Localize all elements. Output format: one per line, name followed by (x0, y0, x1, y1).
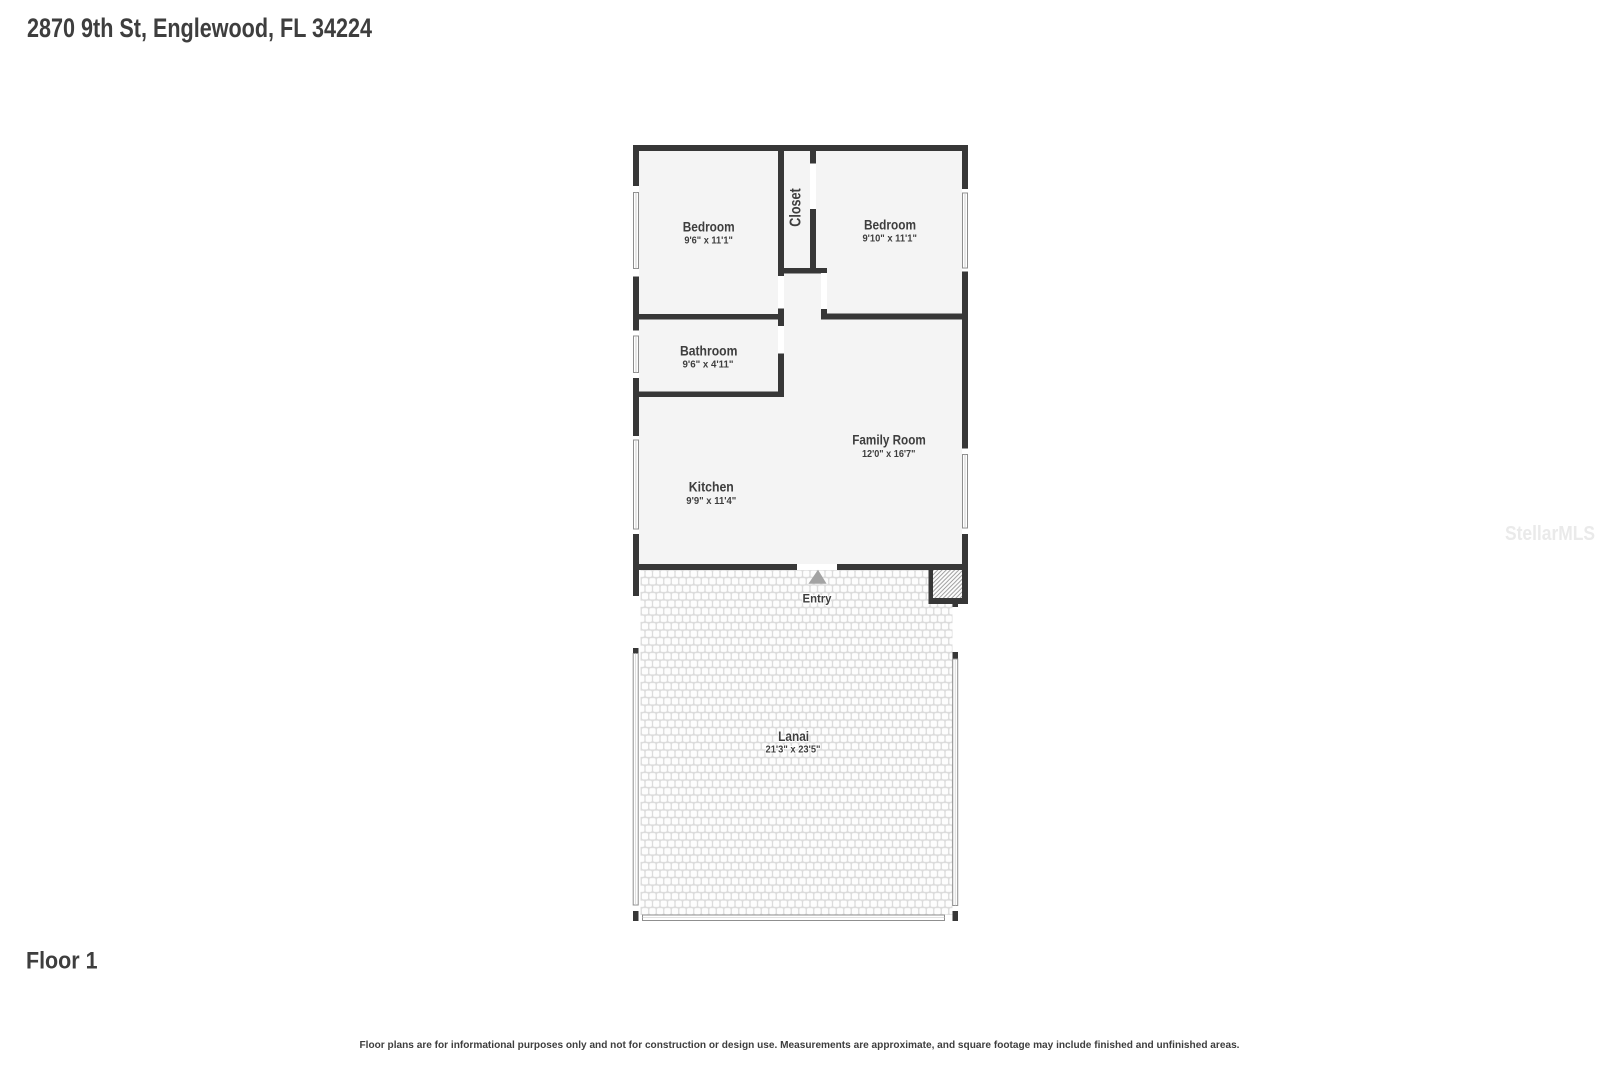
svg-text:21'3" x 23'5": 21'3" x 23'5" (766, 745, 821, 756)
svg-text:StellarMLS: StellarMLS (1505, 522, 1595, 545)
svg-text:Floor 1: Floor 1 (26, 948, 98, 975)
svg-text:Bathroom: Bathroom (680, 343, 738, 359)
svg-text:Bedroom: Bedroom (683, 219, 735, 235)
svg-text:12'0" x 16'7": 12'0" x 16'7" (862, 449, 916, 460)
svg-text:Kitchen: Kitchen (689, 478, 734, 494)
svg-text:Family Room: Family Room (852, 432, 926, 448)
svg-text:Closet: Closet (788, 188, 805, 227)
svg-text:9'9" x 11'4": 9'9" x 11'4" (686, 496, 736, 507)
svg-text:Floor plans are for informatio: Floor plans are for informational purpos… (360, 1039, 1240, 1051)
svg-text:Lanai: Lanai (778, 728, 809, 744)
svg-text:9'6" x 4'11": 9'6" x 4'11" (683, 360, 734, 371)
svg-text:9'6" x 11'1": 9'6" x 11'1" (684, 236, 733, 247)
svg-text:9'10" x 11'1": 9'10" x 11'1" (862, 234, 917, 245)
svg-text:2870 9th St, Englewood, FL 342: 2870 9th St, Englewood, FL 34224 (27, 13, 372, 43)
svg-text:Entry: Entry (803, 592, 832, 606)
svg-text:Bedroom: Bedroom (864, 217, 916, 233)
